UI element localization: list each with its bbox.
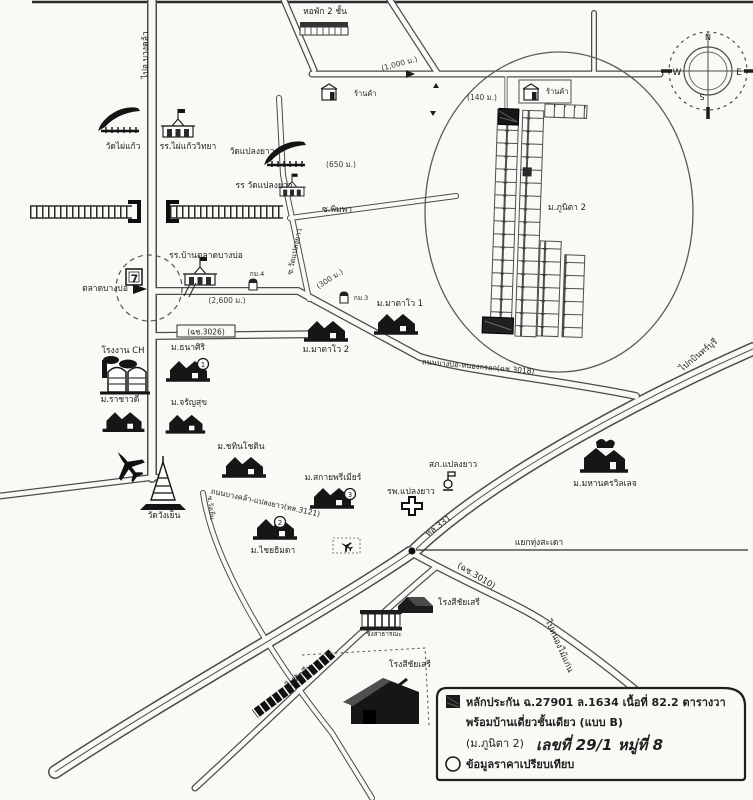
label-school-wat-plaeng-yao: รร วัดแปลงยาว <box>236 181 293 191</box>
chatinchotin-icon <box>222 457 266 476</box>
label-soi-phimpha: ซ.พิมพา <box>322 205 352 215</box>
school-ban-talad-icon <box>183 257 217 285</box>
label-school-ban-talad: รร.บ้านตลาดบางบ่อ <box>169 250 243 261</box>
svg-text:1: 1 <box>201 361 205 369</box>
hospital-cross-icon <box>401 496 423 516</box>
weighbridge-icon <box>360 610 402 631</box>
label-police: สภ.แปลงยาว <box>429 460 477 470</box>
wat-wang-yen-icon <box>140 456 186 510</box>
marker3-circle: 3 <box>345 489 356 500</box>
matavo1-icon <box>374 314 418 333</box>
label-sky-premier: ม.สกายพรีเมียร์ <box>305 472 362 483</box>
label-to-bang-khla: ไปอ.บางคล้า <box>140 31 151 79</box>
compass-e: E <box>736 68 742 78</box>
matavo2-icon <box>304 321 348 340</box>
compass-s: S <box>699 93 704 102</box>
legend-subject-swatch <box>446 695 460 708</box>
label-chaiyathimada: ม.ไชยธิมดา <box>251 545 295 556</box>
label-thanasiri: ม.ธนาศิริ <box>171 343 205 353</box>
rachawadee-icon <box>103 412 145 430</box>
label-thung-sadao: แยกทุ่งสะเดา <box>515 538 563 548</box>
entrance-arrows <box>430 83 439 116</box>
label-dist-140: (140 ม.) <box>467 93 497 102</box>
seven-label: 7 <box>131 273 139 286</box>
label-wat-wang-yen: วัดวังเย็น <box>148 509 181 521</box>
dormitory-icon <box>300 22 348 35</box>
police-station-icon <box>443 472 455 490</box>
label-to-nong-mai-kaen: ไปหนองไม้แก่น <box>542 617 576 674</box>
label-talad-bang-bo: ตลาดบางบ่อ <box>82 284 128 294</box>
label-dist-650: (650 ม.) <box>326 160 356 169</box>
label-rachawadee: ม.ราชาวดี <box>101 394 139 405</box>
shaded-lot <box>523 167 532 176</box>
label-dist-1000: (1,000 ม.) <box>380 54 418 72</box>
label-chatinchotin: ม.ชทินโชติน <box>217 441 264 452</box>
km3-milestone <box>340 292 348 303</box>
legend-line2: พร้อมบ้านเดี่ยวชั้นเดียว (แบบ B) <box>466 714 623 729</box>
label-road-3121: ถนนบางคล้า-แปลงยาว(ทล.3121) <box>210 487 321 519</box>
legend-line3-handwritten: เลขที่ 29/1 หมู่ที่ 8 <box>536 734 663 755</box>
legend-line4: ข้อมูลราคาเปรียบเทียบ <box>466 758 574 772</box>
label-dist-2600: (2,600 ม.) <box>208 296 245 305</box>
marker2-circle: 2 <box>275 517 286 528</box>
svg-text:(ฉช.3026): (ฉช.3026) <box>187 328 225 337</box>
label-dist-300: (300 ม.) <box>315 267 345 291</box>
mahanakorn-icon <box>580 439 628 471</box>
school-phai-kaew-icon <box>161 109 195 137</box>
label-weighbridge: ชั่งสาธารณะ <box>366 629 402 638</box>
compass-rose: N W E S <box>661 32 753 119</box>
label-rice-mill1: โรงสีชัยเสรี <box>438 597 480 608</box>
rice-mill2-icon <box>343 678 419 724</box>
scanned-location-map: N W E S 7 1 3 <box>0 0 753 800</box>
svg-text:2: 2 <box>278 519 282 527</box>
project-lot-grid <box>482 102 590 338</box>
label-dorm: หอพัก 2 ชั้น <box>303 5 347 17</box>
airplane-small-icon <box>333 538 360 554</box>
shop1-icon <box>321 84 337 100</box>
label-wat-plaeng-yao: วัดแปลงยาว <box>229 147 274 157</box>
label-shop1: ร้านค้า <box>354 89 377 98</box>
thung-sadao-junction <box>409 548 749 555</box>
label-shop2: ร้านค้า <box>546 87 569 96</box>
label-wat-phai-kaew: วัดไผ่แก้ว <box>106 141 141 152</box>
label-km3: กม.3 <box>354 294 368 302</box>
label-route-3026: (ฉช.3026) <box>177 325 235 337</box>
label-matavo2: ม.มาตาโว 2 <box>303 344 349 355</box>
factory-ch-icon <box>100 356 150 393</box>
km4-milestone <box>249 279 257 290</box>
legend-box: หลักประกัน ฉ.27901 ล.1634 เนื้อที่ 82.2 … <box>437 688 745 780</box>
label-rice-mill2: โรงสีชัยเสรี <box>389 659 431 670</box>
label-matavo1: ม.มาตาโว 1 <box>377 298 423 309</box>
legend-line3-prefix: (ม.ภูนิตา 2) <box>466 737 524 750</box>
label-factory-ch: โรงงาน CH <box>101 345 144 356</box>
label-hospital: รพ.แปลงยาว <box>387 487 435 497</box>
label-km4: กม.4 <box>250 270 264 278</box>
wat-phai-kaew-icon <box>98 107 140 133</box>
label-mahanakorn: ม.มหานครวิลเลจ <box>573 479 636 489</box>
compass-n: N <box>705 33 711 42</box>
label-school-phai-kaew: รร.ไผ่แก้ววิทยา <box>160 141 217 152</box>
legend-line1: หลักประกัน ฉ.27901 ล.1634 เนื้อที่ 82.2 … <box>466 694 726 709</box>
label-jaransuk: ม.จรัญสุข <box>171 398 207 408</box>
map-canvas: N W E S 7 1 3 <box>0 0 753 800</box>
jaransuk-icon <box>166 415 206 432</box>
compass-w: W <box>673 68 682 78</box>
label-phunita2: ม.ภูนิตา 2 <box>548 203 586 213</box>
svg-text:3: 3 <box>348 491 352 499</box>
marker1-circle: 1 <box>198 359 209 370</box>
